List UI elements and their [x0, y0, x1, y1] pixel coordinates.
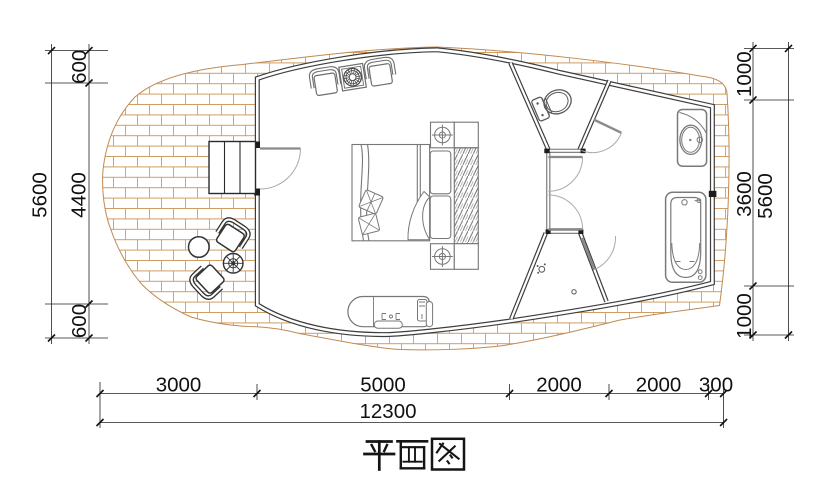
svg-text:3000: 3000 — [156, 374, 202, 397]
svg-text:3600: 3600 — [733, 171, 756, 217]
svg-text:12300: 12300 — [359, 400, 416, 423]
svg-text:5600: 5600 — [754, 173, 777, 219]
svg-text:300: 300 — [699, 374, 733, 397]
svg-text:2000: 2000 — [536, 374, 582, 397]
svg-text:5000: 5000 — [360, 374, 406, 397]
svg-text:4400: 4400 — [68, 172, 91, 218]
svg-text:1000: 1000 — [733, 293, 756, 339]
svg-text:600: 600 — [68, 50, 91, 84]
svg-text:2000: 2000 — [636, 374, 682, 397]
svg-text:5600: 5600 — [29, 172, 52, 218]
svg-text:1000: 1000 — [733, 51, 756, 97]
svg-text:600: 600 — [68, 304, 91, 338]
